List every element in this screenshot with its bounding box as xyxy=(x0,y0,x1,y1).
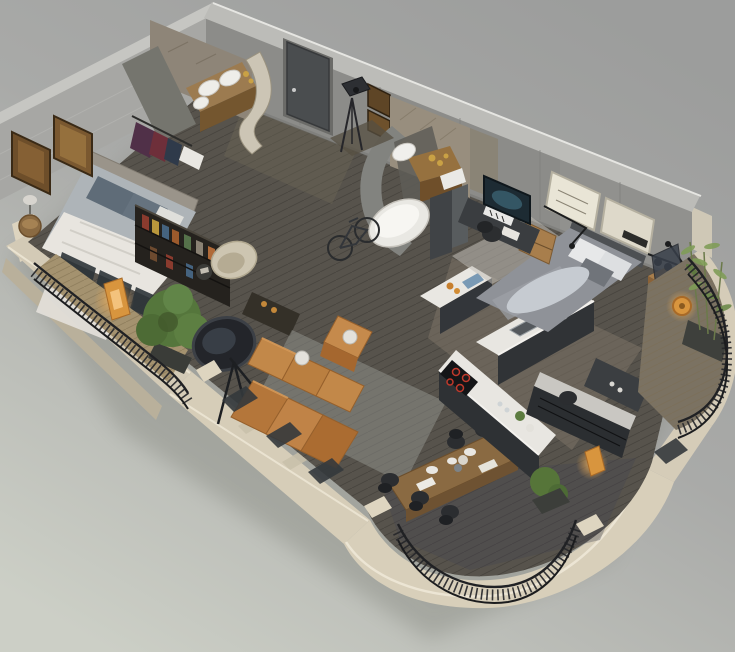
barrel-top xyxy=(22,219,38,229)
burner-4 xyxy=(457,385,464,392)
chair-front-row-1b xyxy=(378,483,392,493)
island-glass-2 xyxy=(505,408,510,413)
tub-side-panel-1 xyxy=(430,190,452,260)
bd2-console-chair xyxy=(559,391,577,405)
console-decor-1 xyxy=(261,301,267,307)
bd2-console-decor-2 xyxy=(618,388,623,393)
bd1-lamp-shade xyxy=(23,195,37,205)
island-herb xyxy=(515,411,525,421)
bath-gold-decor-2 xyxy=(249,79,254,84)
chair-front-row-3b xyxy=(439,515,453,525)
chair-front-row-2b xyxy=(409,501,423,511)
bd2-console-decor-1 xyxy=(610,382,615,387)
dining-plate-3 xyxy=(464,448,476,456)
counter-fruit-1 xyxy=(447,283,454,290)
island-bowl xyxy=(526,424,534,432)
console-decor-2 xyxy=(271,307,277,313)
scene-svg xyxy=(0,0,735,652)
powder-gold-1 xyxy=(429,155,436,162)
powder-gold-2 xyxy=(437,160,443,166)
bath-gold-decor-1 xyxy=(243,71,249,77)
island-glass-1 xyxy=(498,402,503,407)
camera-lens xyxy=(353,87,359,93)
tree-foliage-4 xyxy=(163,284,193,314)
dining-plate-1 xyxy=(426,466,438,474)
swing-lamp-1-head xyxy=(569,243,575,249)
burner-2 xyxy=(463,375,470,382)
scene-root xyxy=(0,0,735,652)
burner-3 xyxy=(447,379,453,385)
tree-foliage-shade xyxy=(158,312,178,332)
burner-1 xyxy=(453,369,460,376)
powder-gold-3 xyxy=(444,154,449,159)
dining-plate-2 xyxy=(447,458,457,465)
swing-lamp-2-head xyxy=(665,241,671,247)
chair-back-row-1b xyxy=(449,429,463,439)
wheel-lamp-hub xyxy=(679,303,685,309)
counter-fruit-2 xyxy=(454,288,460,294)
apartment-render-stage xyxy=(0,0,735,652)
desk-chair-back xyxy=(477,221,493,233)
sofa-side-table-2 xyxy=(295,351,309,365)
door-handle xyxy=(292,88,296,92)
dining-centerpiece xyxy=(454,464,462,472)
dining-flowers xyxy=(458,455,468,465)
sofa-side-table-1 xyxy=(343,330,357,344)
